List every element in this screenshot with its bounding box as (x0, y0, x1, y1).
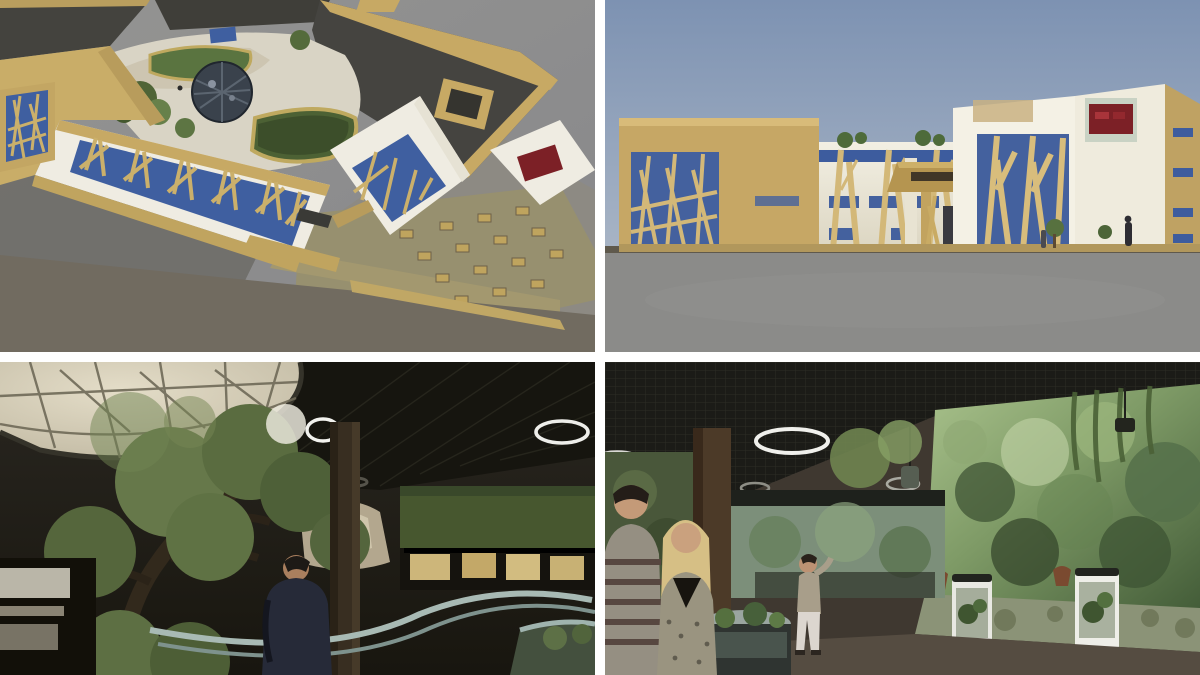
planted-tank (510, 622, 595, 675)
rendering-collage (0, 0, 1200, 675)
skylight-glimpse (266, 404, 306, 444)
foreground-display (0, 558, 96, 675)
horizontal-gutter (0, 352, 1200, 362)
vivarium-window (731, 490, 945, 598)
courtyard-figure (178, 86, 183, 91)
vertical-gutter-top (595, 0, 605, 352)
right-tan-tower (1165, 84, 1200, 250)
wall-art-panel (973, 100, 1033, 122)
panel-street-elevation (605, 0, 1200, 352)
visitor-blonde-woman (657, 520, 717, 675)
panel-interior-tree-hall (0, 362, 595, 675)
base-plinth (619, 244, 1200, 252)
panel-interior-exhibit-hall (605, 362, 1200, 675)
panel-aerial-exterior (0, 0, 595, 352)
left-tan-block (619, 118, 819, 250)
dome-skylight (192, 62, 252, 122)
cylinder-tank (1075, 568, 1119, 650)
red-signboard (1085, 98, 1137, 142)
